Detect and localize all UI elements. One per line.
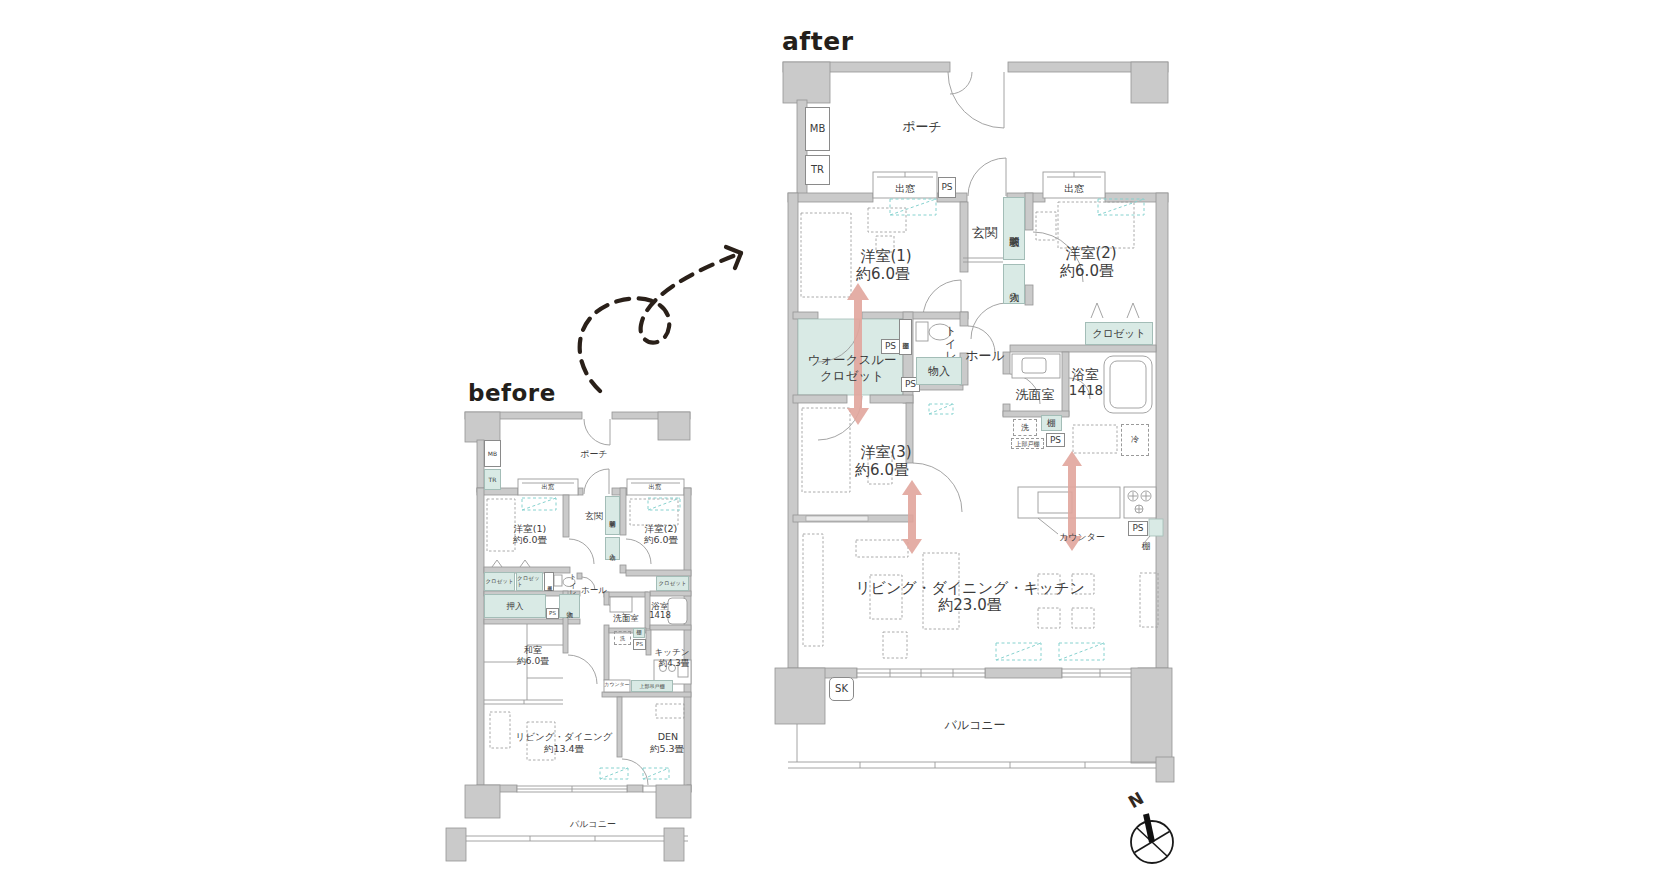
after-ps-box-1: PS xyxy=(938,177,956,198)
after-ps-box-2: PS xyxy=(881,339,900,354)
after-bath-label: 浴室 xyxy=(1072,367,1099,381)
after-genkan-storage-box: 玄関収納 xyxy=(1003,197,1025,260)
before-bay-window-right-label: 出窓 xyxy=(649,484,662,491)
after-bay-window-left-label: 出窓 xyxy=(895,184,915,195)
after-genkan-label: 玄関 xyxy=(972,226,998,240)
before-closet-box-3: クロゼット xyxy=(656,576,689,591)
before-western2-label: 洋室(2) xyxy=(645,524,677,534)
before-hall-label: ホール xyxy=(581,586,607,595)
after-western3-label: 洋室(3) xyxy=(860,445,911,461)
after-bath-size: 1418 xyxy=(1069,383,1103,397)
after-western1-label: 洋室(1) xyxy=(860,249,911,265)
before-washitsu-size: 約6.0畳 xyxy=(517,657,549,666)
before-mb-box: MB xyxy=(484,440,501,467)
before-toilet-label: トイレ xyxy=(568,569,575,593)
before-upper-hanging-cabinet-box: 上部吊戸棚 xyxy=(631,680,673,692)
floorplan-canvas: after before N ポーチ MB TR 出窓 PS 出窓 玄関 玄関収… xyxy=(0,0,1654,894)
after-stove xyxy=(1124,487,1156,518)
compass-icon xyxy=(1131,814,1173,863)
after-fridge-box: 冷 xyxy=(1121,424,1149,456)
before-balcony-label: バルコニー xyxy=(570,820,616,829)
after-tr-box: TR xyxy=(805,155,830,185)
after-balcony-label: バルコニー xyxy=(944,719,1005,732)
before-genkan-storage-box: 玄関収納 xyxy=(605,496,620,535)
before-genkan-label: 玄関 xyxy=(585,512,603,521)
after-monoire-box-2: 物入 xyxy=(916,357,962,385)
before-title: before xyxy=(468,380,556,406)
before-western2-size: 約6.0畳 xyxy=(644,535,678,545)
after-washroom-label: 洗面室 xyxy=(1016,388,1055,402)
before-to-after-arrow xyxy=(580,247,741,391)
after-sk-box: SK xyxy=(829,677,854,701)
before-western1-label: 洋室(1) xyxy=(514,524,546,534)
before-den-size: 約5.3畳 xyxy=(650,744,684,754)
before-upper-shelf-box: 上部棚 xyxy=(544,572,554,591)
after-ps-box-4: PS xyxy=(1046,433,1065,447)
before-ps-box-1: PS xyxy=(546,608,559,619)
before-monoire-box-2: 物入 xyxy=(559,594,580,618)
before-porch-label: ポーチ xyxy=(580,450,607,459)
before-oshiire-box: 押入 xyxy=(484,594,546,618)
after-mb-box: MB xyxy=(805,107,830,151)
after-closet-box: クロゼット xyxy=(1085,322,1153,345)
before-washitsu-label: 和室 xyxy=(524,646,542,655)
before-ps-box-2: PS xyxy=(633,639,646,650)
before-washroom-label: 洗面室 xyxy=(613,614,639,623)
after-counter-label: カウンター xyxy=(1059,533,1105,542)
before-bay-window-left-label: 出窓 xyxy=(542,484,555,491)
after-porch-label: ポーチ xyxy=(902,120,942,134)
after-upper-cabinet-box: 上部戸棚 xyxy=(1011,438,1044,449)
before-shelf-box: 棚 xyxy=(633,628,645,638)
before-kitchen-size: 約4.3畳 xyxy=(659,659,690,668)
before-washer-box: 洗 xyxy=(614,631,631,645)
after-title: after xyxy=(782,27,853,56)
before-western1-size: 約6.0畳 xyxy=(513,535,547,545)
after-western3-size: 約6.0畳 xyxy=(855,463,909,479)
before-bath-size: 1418 xyxy=(649,611,671,620)
after-western1-size: 約6.0畳 xyxy=(856,267,910,283)
before-counter-label: カウンター xyxy=(604,682,629,687)
after-toilet-tank xyxy=(916,322,928,341)
after-walkthrough-closet-line1: ウォークスルー xyxy=(808,353,897,366)
after-western2-size: 約6.0畳 xyxy=(1060,264,1114,280)
after-plan-geometry xyxy=(775,62,1174,782)
before-den-label: DEN xyxy=(658,732,678,742)
before-tr-box: TR xyxy=(484,469,501,490)
before-living-dining-size: 約13.4畳 xyxy=(544,744,584,754)
after-ps-box-5: PS xyxy=(1128,521,1148,536)
after-washer-box: 洗 xyxy=(1013,419,1037,436)
before-kitchen-label: キッチン xyxy=(655,648,690,657)
after-hall-label: ホール xyxy=(965,349,1005,363)
before-closet-box-1: クロゼット xyxy=(484,572,515,591)
after-upper-shelf-box: 上部棚 xyxy=(899,319,912,355)
after-shelf-label-2: 棚 xyxy=(1142,542,1151,551)
before-monoire-box-1: 物入 xyxy=(605,537,620,560)
after-ldk-label: リビング・ダイニング・キッチン xyxy=(855,581,1085,597)
before-living-dining-label: リビング・ダイニング xyxy=(515,732,612,742)
after-western2-label: 洋室(2) xyxy=(1065,246,1116,262)
after-toilet-label: トイレ xyxy=(944,318,956,356)
after-ldk-size: 約23.0畳 xyxy=(938,598,1001,614)
before-plan-geometry xyxy=(446,412,691,861)
after-walkthrough-closet-line2: クロゼット xyxy=(820,369,884,382)
before-closet-box-2: クロゼット xyxy=(516,572,543,591)
after-monoire-box-1: 物入 xyxy=(1003,264,1025,304)
before-bathtub xyxy=(668,598,687,624)
after-bay-window-right-label: 出窓 xyxy=(1064,184,1084,195)
after-shelf-box: 棚 xyxy=(1041,415,1062,431)
